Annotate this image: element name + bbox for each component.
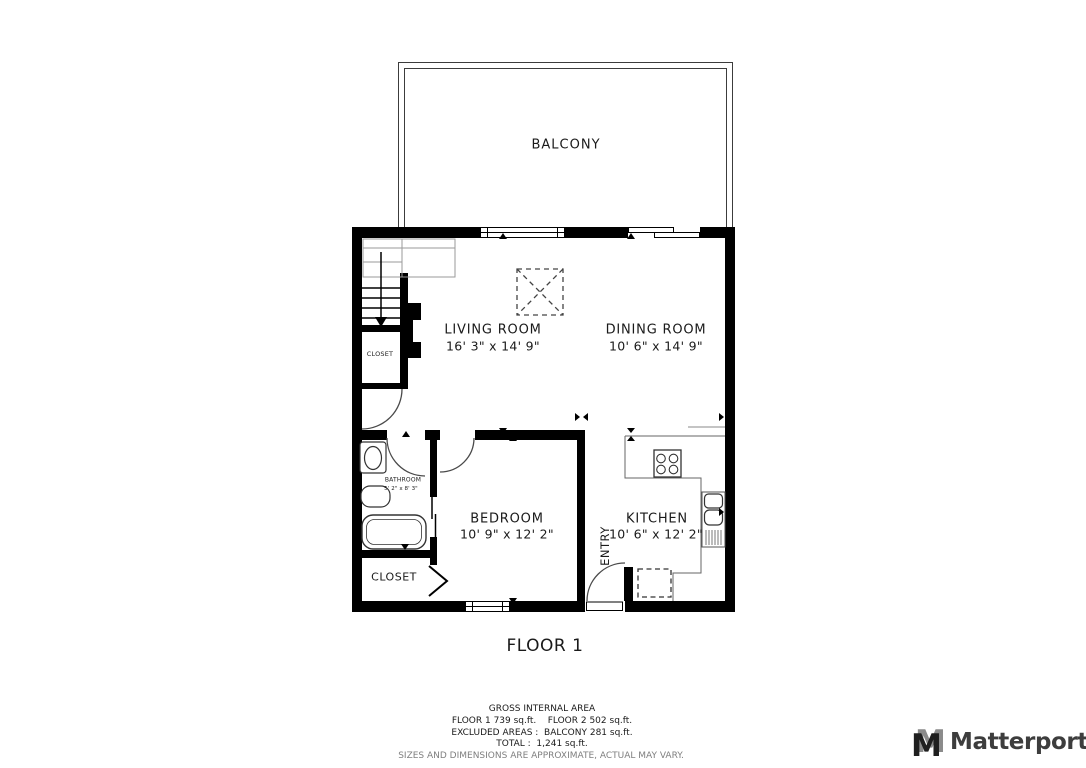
wall-bath-closet-divider bbox=[352, 550, 430, 558]
stove bbox=[654, 450, 681, 477]
opening-pocket-door bbox=[430, 497, 437, 537]
room-label-kitchen: KITCHEN bbox=[626, 512, 688, 527]
opening-bathroom-door bbox=[387, 430, 425, 440]
footer-gross-internal-area: GROSS INTERNAL AREA bbox=[489, 704, 595, 714]
wall-bottom bbox=[352, 601, 735, 612]
footer-floor-areas: FLOOR 1 739 sq.ft. FLOOR 2 502 sq.ft. bbox=[452, 716, 632, 726]
room-dims-bathroom: 5' 2" x 8' 3" bbox=[384, 486, 418, 492]
room-dims-bedroom: 10' 9" x 12' 2" bbox=[460, 527, 554, 542]
room-label-dining-room: DINING ROOM bbox=[606, 323, 707, 338]
ceiling-opening-dashed bbox=[517, 269, 563, 315]
window-living-room bbox=[480, 227, 565, 238]
room-dims-living-room: 16' 3" x 14' 9" bbox=[446, 339, 540, 354]
bathtub bbox=[362, 515, 426, 549]
door-arc-bedroom bbox=[440, 438, 474, 472]
opening-bedroom-door bbox=[440, 430, 475, 440]
floor-title: FLOOR 1 bbox=[507, 636, 584, 656]
wall-right bbox=[725, 227, 735, 612]
room-label-bedroom: BEDROOM bbox=[470, 512, 543, 527]
wall-stair-right bbox=[400, 273, 408, 389]
room-label-bathroom: BATHROOM bbox=[385, 477, 421, 484]
wall-bedroom-right bbox=[577, 430, 585, 601]
window-bedroom bbox=[465, 601, 510, 612]
floor-plan-page: BALCONY LIVING ROOM 16' 3" x 14' 9" DINI… bbox=[0, 0, 1086, 768]
footer-disclaimer: SIZES AND DIMENSIONS ARE APPROXIMATE, AC… bbox=[398, 751, 684, 761]
sliding-door-panel-2 bbox=[654, 232, 700, 238]
door-arc-bathroom bbox=[387, 438, 425, 476]
matterport-logo: M M Matterport bbox=[908, 722, 1086, 762]
room-label-closet-upper: CLOSET bbox=[367, 350, 393, 358]
kitchen-sink bbox=[702, 492, 725, 547]
footer-excluded-areas: EXCLUDED AREAS : BALCONY 281 sq.ft. bbox=[451, 728, 632, 738]
wall-chase-notch bbox=[413, 320, 421, 342]
toilet bbox=[360, 442, 386, 473]
room-dims-dining-room: 10' 6" x 14' 9" bbox=[609, 339, 703, 354]
room-label-entry: ENTRY bbox=[598, 526, 612, 566]
opening-entry-door bbox=[585, 601, 625, 612]
opening-closet-door bbox=[430, 565, 437, 601]
direction-markers bbox=[401, 233, 724, 604]
door-arc-hall bbox=[362, 389, 402, 429]
room-dims-kitchen: 10' 6" x 12' 2" bbox=[609, 527, 703, 542]
svg-text:M: M bbox=[911, 728, 942, 762]
matterport-m-icon: M M bbox=[908, 722, 950, 762]
room-label-living-room: LIVING ROOM bbox=[444, 323, 541, 338]
wall-closet-bottom bbox=[352, 383, 402, 389]
footer-total-area: TOTAL : 1,241 sq.ft. bbox=[496, 739, 587, 749]
refrigerator-dashed bbox=[638, 569, 671, 597]
room-label-closet-lower: CLOSET bbox=[371, 571, 417, 584]
matterport-logo-text: Matterport bbox=[950, 729, 1086, 755]
door-arc-entry bbox=[587, 563, 625, 601]
wall-entry-stub bbox=[624, 567, 633, 601]
room-label-balcony: BALCONY bbox=[531, 138, 600, 153]
